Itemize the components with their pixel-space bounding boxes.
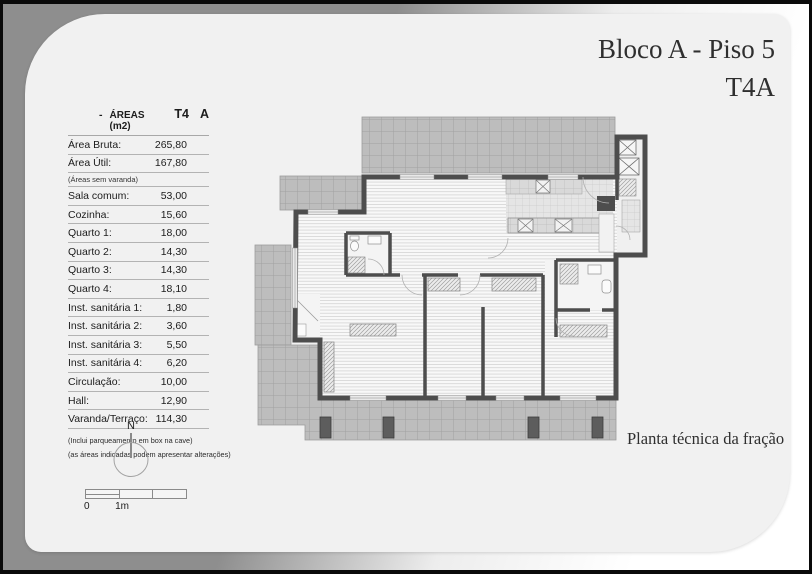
scale-bar-divider: [152, 490, 153, 498]
area-row-value: 53,00: [161, 190, 187, 202]
north-indicator: N: [113, 420, 149, 476]
area-row: Área Bruta: 265,80: [68, 136, 209, 155]
areas-table-rows: Área Bruta: 265,80 Área Útil: 167,80 (Ár…: [68, 136, 209, 429]
area-row-label: Circulação:: [68, 376, 121, 388]
area-row: (Áreas sem varanda): [68, 173, 209, 187]
area-row: Quarto 4: 18,10: [68, 280, 209, 299]
area-row: Sala comum: 53,00: [68, 187, 209, 206]
areas-table: - ÁREAS (m2) T4 A Área Bruta: 265,80 Áre…: [68, 106, 209, 462]
area-row-label: Hall:: [68, 395, 89, 407]
area-row-value: 265,80: [155, 139, 187, 151]
north-circle-icon: [114, 442, 149, 477]
area-row-value: 3,60: [167, 320, 187, 332]
area-row-label: Inst. sanitária 3:: [68, 339, 142, 351]
area-row-value: 18,10: [161, 283, 187, 295]
area-row-label: Quarto 1:: [68, 227, 112, 239]
area-row: Quarto 1: 18,00: [68, 224, 209, 243]
area-row-value: 167,80: [155, 157, 187, 169]
area-row: Inst. sanitária 1: 1,80: [68, 299, 209, 318]
header-areas-label: ÁREAS (m2): [110, 110, 162, 132]
area-row: Área Útil: 167,80: [68, 155, 209, 174]
area-row-label: Sala comum:: [68, 190, 129, 202]
area-row-value: 18,00: [161, 227, 187, 239]
area-row-label: (Áreas sem varanda): [68, 175, 138, 184]
scale-bar: 0 1m: [85, 489, 187, 499]
area-row-label: Inst. sanitária 4:: [68, 357, 142, 369]
scanned-drawing-sheet: Bloco A - Piso 5 T4A - ÁREAS (m2) T4 A Á…: [0, 0, 812, 574]
area-row-label: Inst. sanitária 1:: [68, 302, 142, 314]
room-kitchen: [506, 179, 613, 233]
north-label: N: [127, 420, 135, 432]
plan-caption: Planta técnica da fração: [627, 429, 784, 449]
area-row-value: 1,80: [167, 302, 187, 314]
entry-hall: [295, 294, 320, 338]
title-block: Bloco A - Piso 5 T4A: [598, 34, 775, 103]
area-row: Circulação: 10,00: [68, 373, 209, 392]
area-row-value: 114,30: [156, 413, 187, 425]
scale-zero-label: 0: [84, 501, 90, 512]
area-row-value: 12,90: [161, 395, 187, 407]
unit-type-title: T4A: [598, 72, 775, 103]
area-row-label: Área Bruta:: [68, 139, 121, 151]
scale-bar-divider: [119, 490, 120, 498]
area-row-value: 5,50: [167, 339, 187, 351]
area-row: Cozinha: 15,60: [68, 206, 209, 225]
area-row: Quarto 2: 14,30: [68, 243, 209, 262]
area-row: Inst. sanitária 4: 6,20: [68, 355, 209, 374]
area-row-label: Quarto 3:: [68, 264, 112, 276]
area-row-value: 10,00: [161, 376, 187, 388]
area-row-label: Área Útil:: [68, 157, 111, 169]
areas-table-header: - ÁREAS (m2) T4 A: [68, 106, 209, 136]
scale-bar-half-line: [86, 494, 119, 495]
area-row: Quarto 3: 14,30: [68, 262, 209, 281]
area-row: Hall: 12,90: [68, 392, 209, 411]
area-row-label: Quarto 4:: [68, 283, 112, 295]
header-dash: -: [99, 109, 103, 121]
floor-plan: [250, 108, 650, 448]
header-col-a: A: [200, 107, 209, 121]
area-row-value: 6,20: [167, 357, 187, 369]
area-row: Inst. sanitária 3: 5,50: [68, 336, 209, 355]
area-row-label: Cozinha:: [68, 209, 109, 221]
area-row-value: 15,60: [161, 209, 187, 221]
area-row-value: 14,30: [161, 246, 187, 258]
area-row: Inst. sanitária 2: 3,60: [68, 317, 209, 336]
area-row-value: 14,30: [161, 264, 187, 276]
header-col-t4: T4: [174, 107, 189, 121]
scale-one-meter-label: 1m: [115, 501, 129, 512]
bathroom-middle: [346, 233, 390, 275]
area-row-label: Quarto 2:: [68, 246, 112, 258]
block-floor-title: Bloco A - Piso 5: [598, 34, 775, 65]
area-row-label: Inst. sanitária 2:: [68, 320, 142, 332]
